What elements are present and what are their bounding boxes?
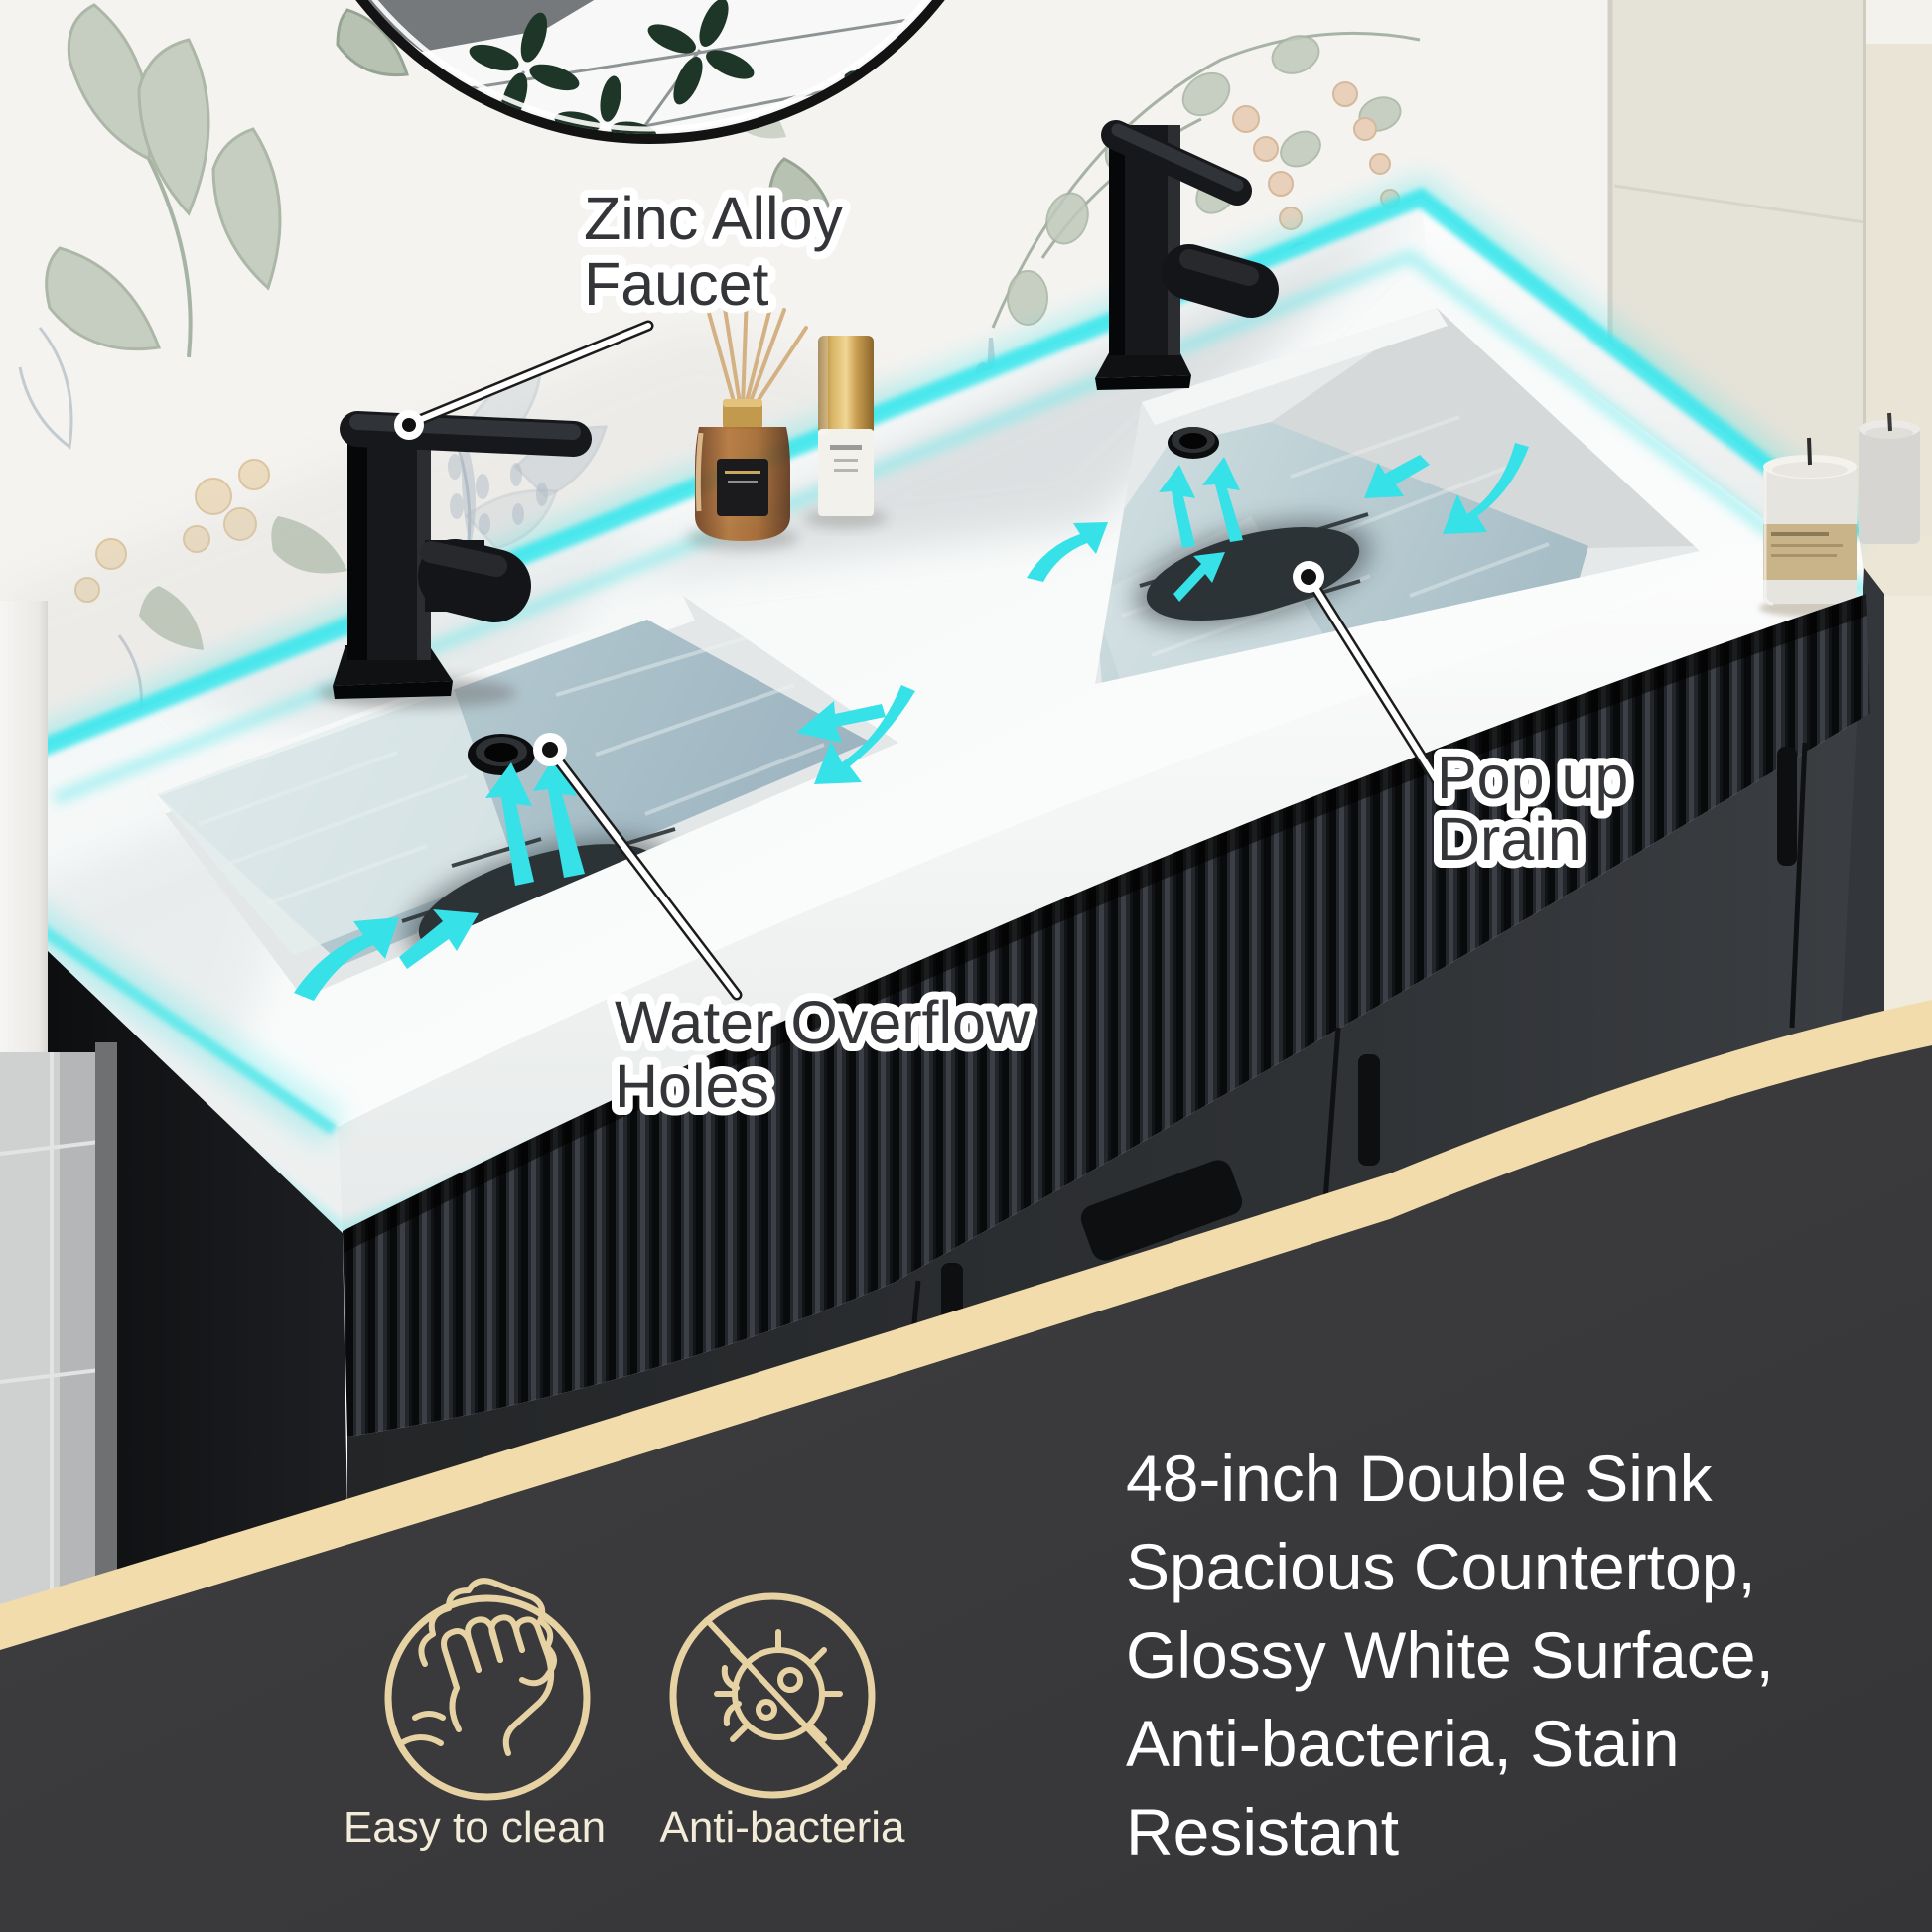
svg-text:Resistant: Resistant bbox=[1126, 1795, 1399, 1868]
svg-text:Anti-bacteria: Anti-bacteria bbox=[659, 1803, 905, 1852]
svg-text:48-inch Double Sink: 48-inch Double Sink bbox=[1126, 1442, 1714, 1515]
svg-text:Holes: Holes bbox=[615, 1052, 769, 1120]
svg-text:Pop up: Pop up bbox=[1437, 744, 1628, 811]
svg-text:Glossy White Surface,: Glossy White Surface, bbox=[1126, 1618, 1774, 1692]
svg-text:Drain: Drain bbox=[1437, 805, 1582, 873]
svg-text:Water Overflow: Water Overflow bbox=[615, 989, 1031, 1056]
svg-text:Easy to clean: Easy to clean bbox=[344, 1803, 606, 1852]
svg-text:Zinc Alloy: Zinc Alloy bbox=[584, 185, 844, 252]
svg-text:Spacious Countertop,: Spacious Countertop, bbox=[1126, 1530, 1756, 1603]
svg-text:Anti-bacteria, Stain: Anti-bacteria, Stain bbox=[1126, 1707, 1680, 1780]
svg-text:Faucet: Faucet bbox=[584, 250, 769, 318]
